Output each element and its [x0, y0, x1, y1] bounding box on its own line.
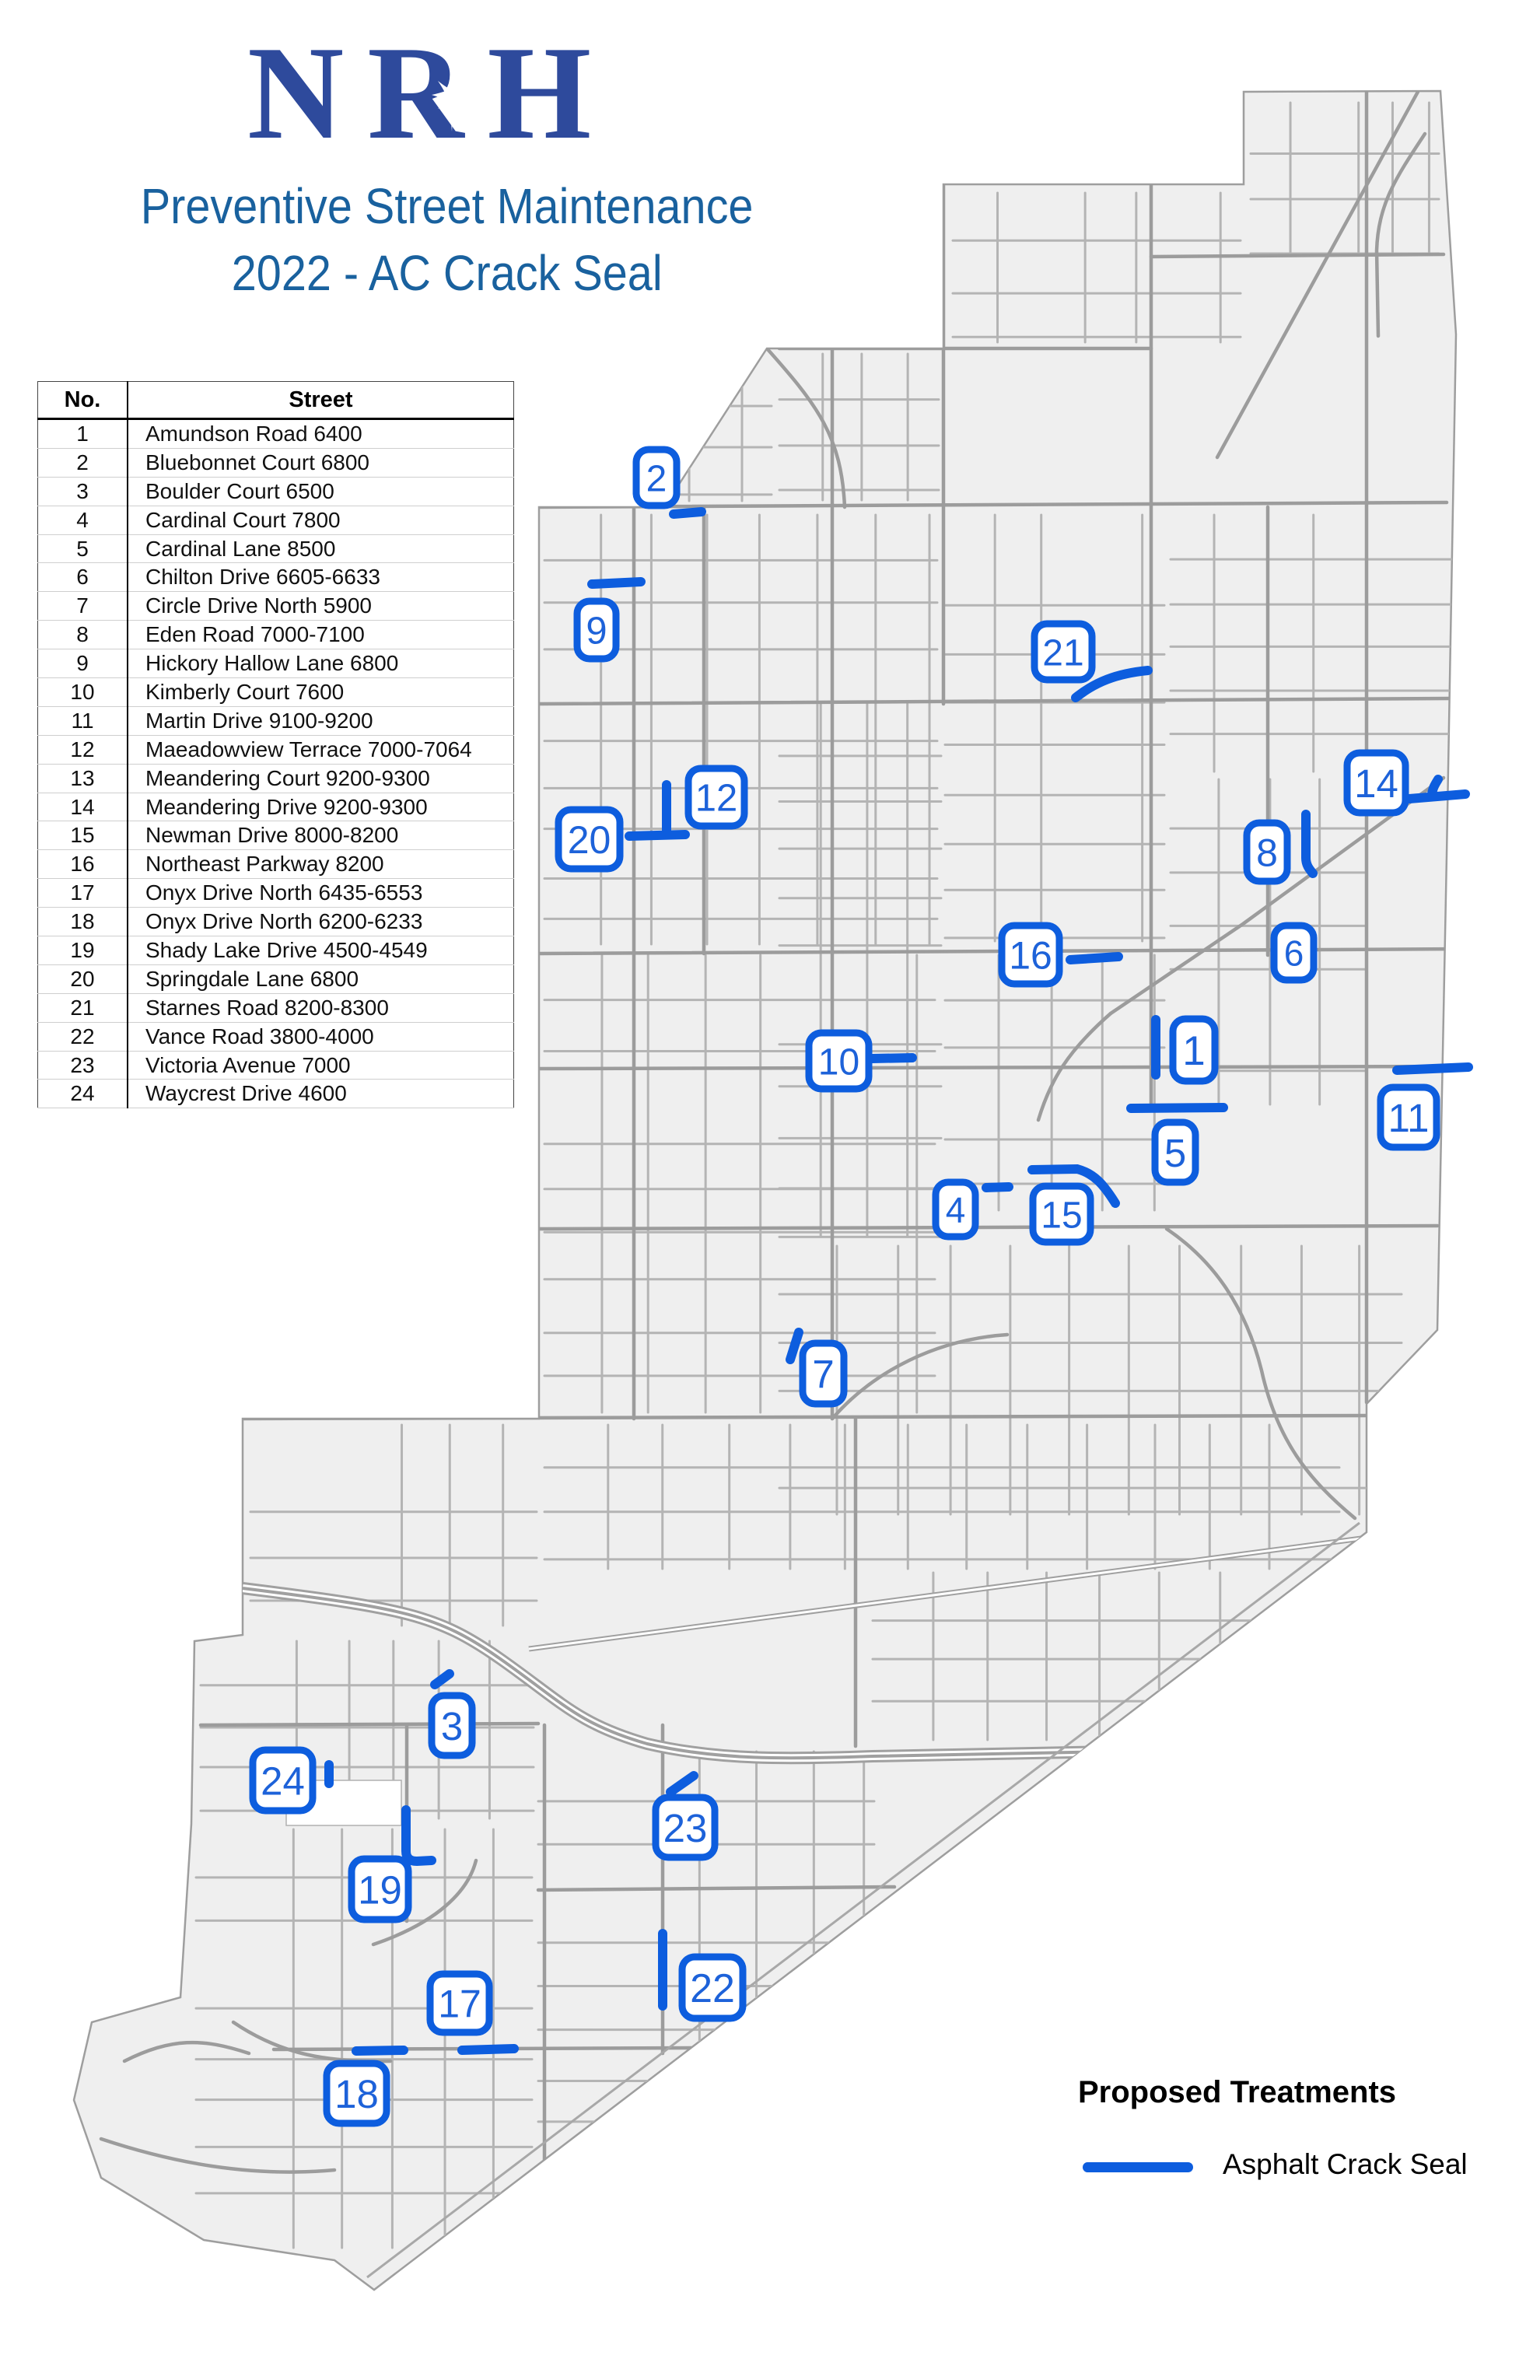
nrh-logo: NRH [247, 31, 636, 156]
badge-number: 19 [358, 1867, 402, 1912]
title-line-1: Preventive Street Maintenance [141, 173, 754, 240]
treatment-segment-9 [592, 582, 641, 584]
map-badge-10: 10 [809, 1033, 869, 1089]
table-row: 22Vance Road 3800-4000 [38, 1022, 514, 1051]
street-number-cell: 16 [38, 850, 128, 879]
legend-item-label: Asphalt Crack Seal [1223, 2148, 1468, 2181]
street-name-cell: Shady Lake Drive 4500-4549 [128, 936, 514, 965]
street-number-cell: 21 [38, 993, 128, 1022]
street-name-cell: Bluebonnet Court 6800 [128, 448, 514, 477]
badge-number: 4 [946, 1190, 966, 1230]
badge-number: 14 [1354, 761, 1398, 806]
table-row: 8Eden Road 7000-7100 [38, 621, 514, 649]
badge-number: 2 [646, 458, 667, 499]
street-number-cell: 15 [38, 821, 128, 850]
map-badge-24: 24 [253, 1750, 313, 1811]
title-line-2: 2022 - AC Crack Seal [232, 240, 663, 306]
map-badge-16: 16 [1002, 926, 1059, 984]
badge-number: 5 [1164, 1131, 1186, 1175]
nrh-logo-star-icon [425, 53, 479, 138]
badge-number: 12 [695, 778, 738, 820]
treatment-segment-18 [356, 2050, 404, 2051]
street-number-cell: 12 [38, 735, 128, 764]
badge-number: 23 [663, 1806, 708, 1850]
badge-number: 18 [334, 2072, 379, 2116]
map-badge-5: 5 [1155, 1122, 1195, 1182]
street-name-cell: Waycrest Drive 4600 [128, 1080, 514, 1108]
table-row: 11Martin Drive 9100-9200 [38, 706, 514, 735]
street-number-cell: 7 [38, 592, 128, 621]
street-number-cell: 4 [38, 506, 128, 534]
street-table: No. Street 1Amundson Road 64002Bluebonne… [37, 381, 514, 1108]
street-name-cell: Meandering Court 9200-9300 [128, 764, 514, 793]
street-list: No. Street 1Amundson Road 64002Bluebonne… [37, 381, 514, 1108]
badge-number: 16 [1009, 934, 1052, 978]
street-name-cell: Newman Drive 8000-8200 [128, 821, 514, 850]
table-row: 23Victoria Avenue 7000 [38, 1051, 514, 1080]
street-name-cell: Meandering Drive 9200-9300 [128, 793, 514, 821]
table-row: 3Boulder Court 6500 [38, 477, 514, 506]
street-name-cell: Chilton Drive 6605-6633 [128, 563, 514, 592]
table-row: 24Waycrest Drive 4600 [38, 1080, 514, 1108]
street-number-cell: 22 [38, 1022, 128, 1051]
street-number-cell: 19 [38, 936, 128, 965]
treatment-segment-16 [1070, 957, 1118, 960]
map-badge-12: 12 [688, 768, 744, 826]
map-badge-9: 9 [577, 601, 616, 659]
table-row: 2Bluebonnet Court 6800 [38, 448, 514, 477]
table-row: 16Northeast Parkway 8200 [38, 850, 514, 879]
map-badge-17: 17 [430, 1974, 489, 2032]
street-number-cell: 17 [38, 879, 128, 908]
badge-number: 6 [1284, 933, 1304, 974]
badge-number: 9 [586, 611, 607, 653]
street-name-cell: Onyx Drive North 6200-6233 [128, 908, 514, 936]
street-number-cell: 18 [38, 908, 128, 936]
street-name-cell: Victoria Avenue 7000 [128, 1051, 514, 1080]
table-row: 19Shady Lake Drive 4500-4549 [38, 936, 514, 965]
badge-number: 3 [441, 1704, 463, 1748]
street-name-cell: Cardinal Court 7800 [128, 506, 514, 534]
street-name-cell: Boulder Court 6500 [128, 477, 514, 506]
street-number-cell: 8 [38, 621, 128, 649]
street-number-cell: 11 [38, 706, 128, 735]
street-number-cell: 20 [38, 964, 128, 993]
badge-number: 24 [261, 1759, 305, 1803]
street-name-cell: Martin Drive 9100-9200 [128, 706, 514, 735]
table-row: 17Onyx Drive North 6435-6553 [38, 879, 514, 908]
badge-number: 20 [568, 818, 611, 862]
map-badge-20: 20 [558, 810, 620, 869]
map-badge-4: 4 [936, 1182, 975, 1237]
street-name-cell: Eden Road 7000-7100 [128, 621, 514, 649]
map-badge-6: 6 [1274, 926, 1314, 980]
table-row: 15Newman Drive 8000-8200 [38, 821, 514, 850]
map-badge-21: 21 [1034, 624, 1092, 680]
treatment-segment-5 [1131, 1108, 1223, 1108]
column-header-street: Street [128, 382, 514, 419]
page: 1234567891011121415161718192021222324 NR… [0, 0, 1540, 2380]
map-badge-19: 19 [352, 1859, 408, 1920]
treatment-segment-4 [986, 1187, 1009, 1188]
street-number-cell: 23 [38, 1051, 128, 1080]
street-number-cell: 3 [38, 477, 128, 506]
column-header-no: No. [38, 382, 128, 419]
map-badge-15: 15 [1033, 1186, 1090, 1242]
street-name-cell: Amundson Road 6400 [128, 419, 514, 449]
map-badge-11: 11 [1381, 1087, 1437, 1147]
street-number-cell: 14 [38, 793, 128, 821]
street-number-cell: 5 [38, 534, 128, 563]
street-name-cell: Kimberly Court 7600 [128, 678, 514, 707]
badge-number: 15 [1041, 1195, 1082, 1236]
map-badge-23: 23 [656, 1797, 715, 1857]
table-row: 14Meandering Drive 9200-9300 [38, 793, 514, 821]
map-badge-18: 18 [327, 2063, 387, 2123]
street-name-cell: Circle Drive North 5900 [128, 592, 514, 621]
badge-number: 1 [1182, 1028, 1205, 1074]
table-row: 6Chilton Drive 6605-6633 [38, 563, 514, 592]
table-row: 18Onyx Drive North 6200-6233 [38, 908, 514, 936]
badge-number: 21 [1042, 632, 1083, 674]
map-badge-2: 2 [636, 450, 677, 506]
table-header-row: No. Street [38, 382, 514, 419]
street-number-cell: 13 [38, 764, 128, 793]
treatment-segment-2 [674, 512, 702, 514]
table-row: 20Springdale Lane 6800 [38, 964, 514, 993]
street-name-cell: Northeast Parkway 8200 [128, 850, 514, 879]
treatment-segment-17 [462, 2049, 514, 2050]
table-row: 4Cardinal Court 7800 [38, 506, 514, 534]
table-row: 13Meandering Court 9200-9300 [38, 764, 514, 793]
street-name-cell: Maeadowview Terrace 7000-7064 [128, 735, 514, 764]
street-name-cell: Cardinal Lane 8500 [128, 534, 514, 563]
street-number-cell: 1 [38, 419, 128, 449]
table-row: 1Amundson Road 6400 [38, 419, 514, 449]
badge-number: 17 [438, 1983, 481, 2026]
street-name-cell: Vance Road 3800-4000 [128, 1022, 514, 1051]
map-badge-8: 8 [1247, 823, 1287, 881]
street-name-cell: Springdale Lane 6800 [128, 964, 514, 993]
map-badge-14: 14 [1347, 753, 1405, 813]
street-number-cell: 24 [38, 1080, 128, 1108]
map-badge-3: 3 [432, 1696, 472, 1755]
treatment-segment-11 [1397, 1067, 1468, 1070]
asphalt-crack-seal-line-swatch [1083, 2162, 1193, 2172]
map-badge-7: 7 [803, 1343, 844, 1404]
street-table-body: 1Amundson Road 64002Bluebonnet Court 680… [38, 419, 514, 1108]
badge-number: 7 [812, 1352, 834, 1396]
table-row: 9Hickory Hallow Lane 6800 [38, 649, 514, 678]
badge-number: 8 [1256, 831, 1278, 875]
badge-number: 11 [1388, 1096, 1430, 1140]
table-row: 10Kimberly Court 7600 [38, 678, 514, 707]
map-badge-1: 1 [1173, 1019, 1215, 1081]
street-number-cell: 2 [38, 448, 128, 477]
map-badge-22: 22 [682, 1957, 743, 2018]
treatment-segment-10 [872, 1058, 912, 1059]
page-title: Preventive Street Maintenance 2022 - AC … [0, 173, 894, 306]
badge-number: 22 [690, 1966, 735, 2011]
street-number-cell: 9 [38, 649, 128, 678]
street-number-cell: 10 [38, 678, 128, 707]
street-name-cell: Starnes Road 8200-8300 [128, 993, 514, 1022]
street-number-cell: 6 [38, 563, 128, 592]
table-row: 21Starnes Road 8200-8300 [38, 993, 514, 1022]
table-row: 7Circle Drive North 5900 [38, 592, 514, 621]
city-map: 1234567891011121415161718192021222324 [0, 0, 1540, 2380]
table-row: 5Cardinal Lane 8500 [38, 534, 514, 563]
badge-number: 10 [818, 1041, 859, 1083]
table-row: 12Maeadowview Terrace 7000-7064 [38, 735, 514, 764]
legend-title: Proposed Treatments [1078, 2075, 1396, 2110]
street-name-cell: Hickory Hallow Lane 6800 [128, 649, 514, 678]
street-name-cell: Onyx Drive North 6435-6553 [128, 879, 514, 908]
